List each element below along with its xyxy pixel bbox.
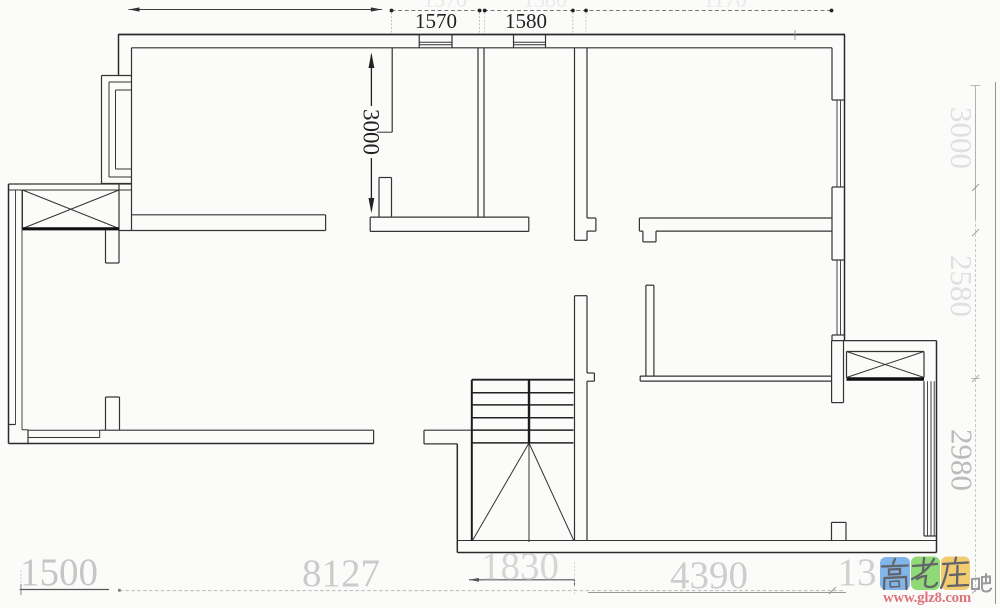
svg-text:4390: 4390 (670, 554, 748, 597)
svg-text:2980: 2980 (945, 429, 980, 491)
svg-text:1570: 1570 (415, 9, 457, 33)
svg-text:1830: 1830 (481, 545, 559, 588)
svg-text:1500: 1500 (20, 551, 98, 594)
svg-text:1570: 1570 (423, 0, 467, 12)
svg-text:www.glz8.com: www.glz8.com (883, 590, 972, 606)
svg-text:3000: 3000 (359, 109, 384, 155)
svg-text:1170: 1170 (703, 0, 746, 12)
svg-text:1580: 1580 (523, 0, 567, 12)
svg-text:8127: 8127 (302, 552, 380, 595)
svg-text:3000: 3000 (944, 107, 979, 169)
svg-text:13: 13 (838, 551, 877, 594)
svg-text:1580: 1580 (505, 9, 547, 33)
svg-text:2580: 2580 (944, 255, 979, 317)
